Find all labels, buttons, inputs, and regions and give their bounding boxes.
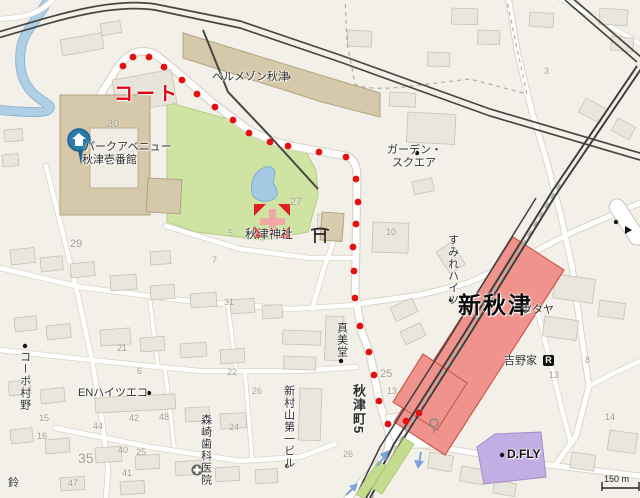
route-dot (416, 410, 423, 417)
morisaki-dental-label: 森崎歯科医院 (199, 414, 212, 486)
route-dot (352, 295, 359, 302)
route-dot (371, 372, 378, 379)
dfly-label: D.FLY (507, 448, 541, 462)
block-number: 30 (107, 118, 119, 130)
restaurant-icon: R (543, 355, 554, 366)
route-dot (353, 176, 360, 183)
mamido-label: 真美堂 (335, 322, 348, 358)
route-dot (351, 268, 358, 275)
route-dot (120, 63, 127, 70)
route-dot (146, 54, 153, 61)
garden-square-label-2: スクエア (392, 157, 436, 170)
block-number: 42 (129, 413, 139, 423)
route-dot (316, 149, 323, 156)
block-number: 47 (68, 478, 78, 488)
suzu-label: 鈴 (8, 477, 19, 490)
route-dot (343, 154, 350, 161)
akitsu-cho5-street-label: 秋津町5 (350, 384, 365, 434)
belle-maison-label: ベルメゾン秋津 (212, 71, 289, 84)
shinmurayama-bldg-label: 新村山第一ビル (282, 385, 295, 469)
garden-square-label-1: ガーデン・ (387, 144, 442, 157)
route-dot (230, 117, 237, 124)
map-root: コート ベルメゾン秋津 パークアベニュー 秋津壱番館 ガーデン・ スクエア 秋津… (0, 0, 640, 498)
block-number: 5 (228, 228, 233, 238)
sumire-heights-label: すみれハイツ (446, 234, 459, 306)
tsutaya-label: ツタヤ (521, 304, 554, 317)
yoshinoya-label: 吉野家 (504, 355, 537, 368)
route-dot (212, 104, 219, 111)
route-dot (357, 323, 364, 330)
block-number: 24 (229, 422, 239, 432)
route-dot (130, 54, 137, 61)
block-number: 7 (212, 255, 217, 265)
block-number: 26 (343, 449, 353, 459)
block-number: 21 (117, 343, 127, 353)
block-number: 22 (227, 367, 237, 377)
block-number: 41 (122, 468, 132, 478)
block-number: 27 (290, 196, 302, 208)
route-dot (366, 349, 373, 356)
block-number: 8 (585, 355, 590, 365)
block-number: 48 (159, 412, 169, 422)
block-number: 25 (380, 368, 392, 380)
park-avenue-label-2: 秋津壱番館 (82, 154, 137, 167)
corpo-murano-label: コーポ村野 (18, 351, 31, 411)
block-number: 13 (387, 386, 397, 396)
route-dot (376, 398, 383, 405)
block-number: 6 (137, 366, 142, 376)
akitsu-shrine-label: 秋津神社 (245, 228, 293, 242)
route-dot (161, 64, 168, 71)
block-number: 13 (549, 370, 559, 380)
route-dot (385, 421, 392, 428)
block-number: 40 (118, 445, 128, 455)
block-number: 15 (39, 413, 49, 423)
route-dot (246, 130, 253, 137)
block-number: 3 (544, 66, 549, 76)
route-dot (353, 221, 360, 228)
scale-label: 150 m (604, 474, 629, 484)
block-number: 14 (605, 412, 615, 422)
route-dot (285, 143, 292, 150)
block-number: 25 (136, 447, 146, 457)
block-number: 16 (37, 431, 47, 441)
route-dot (267, 139, 274, 146)
block-number: 31 (224, 297, 234, 307)
en-heights-label: ENハイツエコ (78, 387, 148, 400)
block-number: 29 (70, 238, 82, 250)
court-label: コート (114, 84, 180, 106)
block-number: 10 (386, 227, 396, 237)
route-dot (350, 244, 357, 251)
route-dot (403, 418, 410, 425)
shrine-building (320, 212, 344, 241)
block-number: 35 (78, 450, 94, 466)
route-dot (179, 77, 186, 84)
route-dot (194, 91, 201, 98)
block-number: 44 (93, 421, 103, 431)
route-dot (355, 199, 362, 206)
park-avenue-label-1: パークアベニュー (84, 141, 172, 154)
block-number: 26 (252, 386, 262, 396)
